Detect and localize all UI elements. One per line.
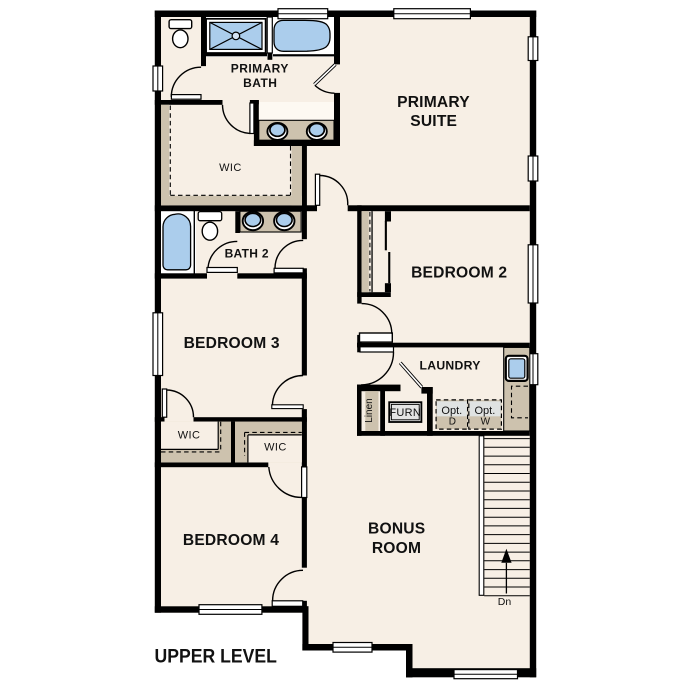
svg-text:LAUNDRY: LAUNDRY [419, 359, 480, 373]
svg-text:BATH: BATH [243, 76, 277, 90]
svg-text:BEDROOM 2: BEDROOM 2 [411, 265, 507, 282]
svg-text:Opt.: Opt. [475, 405, 496, 417]
svg-text:WIC: WIC [264, 442, 287, 454]
svg-text:W: W [481, 416, 491, 427]
svg-text:BATH 2: BATH 2 [225, 246, 269, 260]
svg-text:Dn: Dn [498, 596, 512, 608]
svg-text:D: D [449, 416, 456, 427]
svg-text:UPPER LEVEL: UPPER LEVEL [155, 647, 278, 668]
svg-text:PRIMARY: PRIMARY [231, 62, 289, 76]
svg-text:ROOM: ROOM [372, 540, 421, 557]
svg-text:Opt.: Opt. [441, 405, 462, 417]
svg-text:BEDROOM 4: BEDROOM 4 [183, 532, 279, 549]
svg-text:SUITE: SUITE [410, 113, 457, 130]
svg-text:WIC: WIC [219, 162, 242, 174]
svg-text:BEDROOM 3: BEDROOM 3 [184, 335, 280, 352]
svg-text:BONUS: BONUS [368, 521, 425, 538]
svg-text:WIC: WIC [178, 430, 201, 442]
svg-text:PRIMARY: PRIMARY [397, 94, 470, 111]
svg-text:FURN: FURN [389, 407, 421, 419]
svg-text:Linen: Linen [364, 398, 375, 422]
